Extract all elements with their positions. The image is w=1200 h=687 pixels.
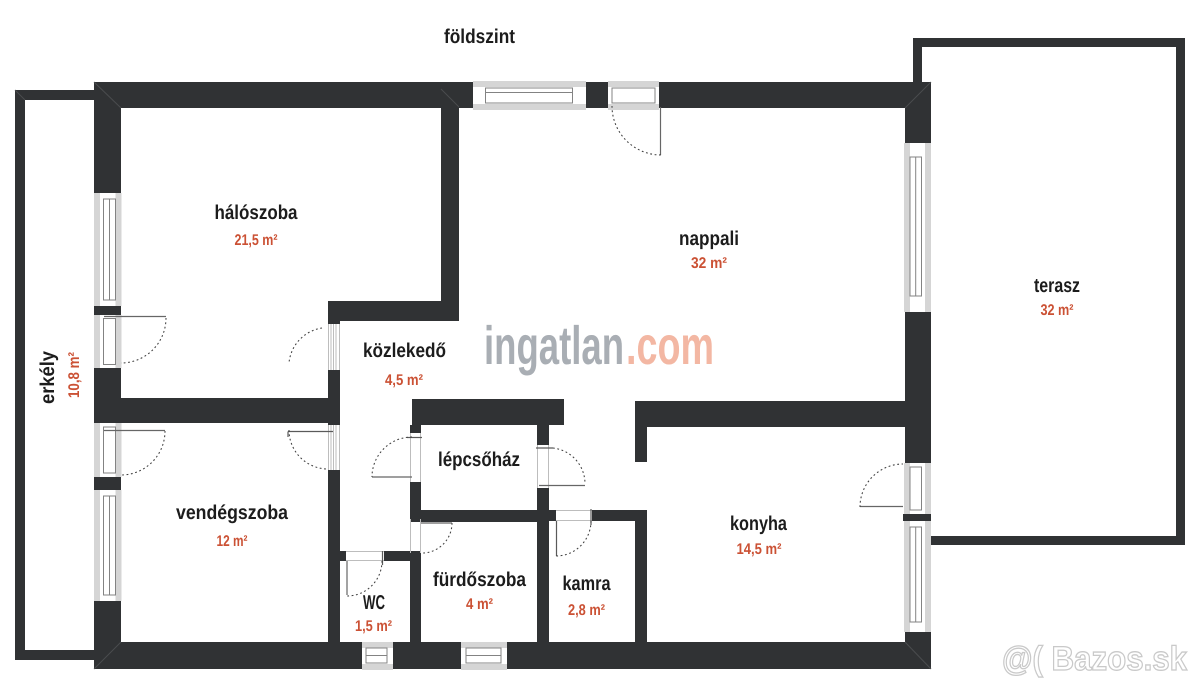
- svg-text:32 m²: 32 m²: [691, 255, 727, 272]
- svg-text:lépcsőház: lépcsőház: [438, 449, 520, 471]
- svg-text:1,5 m²: 1,5 m²: [355, 618, 392, 635]
- svg-text:földszint: földszint: [444, 26, 515, 48]
- svg-text:14,5 m²: 14,5 m²: [737, 541, 782, 558]
- svg-text:konyha: konyha: [730, 513, 788, 535]
- svg-text:4,5 m²: 4,5 m²: [385, 372, 423, 389]
- svg-text:ingatlan: ingatlan: [484, 316, 624, 376]
- svg-text:közlekedő: közlekedő: [363, 340, 446, 362]
- svg-text:vendégszoba: vendégszoba: [176, 502, 289, 524]
- svg-text:WC: WC: [363, 592, 385, 614]
- svg-text:terasz: terasz: [1034, 275, 1080, 297]
- svg-text:10,8 m²: 10,8 m²: [66, 352, 83, 398]
- svg-text:erkély: erkély: [37, 350, 59, 404]
- svg-text:2,8 m²: 2,8 m²: [568, 602, 605, 619]
- svg-text:21,5 m²: 21,5 m²: [235, 232, 278, 249]
- svg-text:nappali: nappali: [679, 228, 739, 250]
- svg-text:4 m²: 4 m²: [466, 596, 493, 613]
- svg-text:@( Bazos.sk: @( Bazos.sk: [1002, 640, 1187, 678]
- svg-text:32 m²: 32 m²: [1041, 302, 1074, 319]
- svg-text:kamra: kamra: [563, 573, 612, 595]
- svg-text:hálószoba: hálószoba: [215, 202, 299, 224]
- svg-text:.com: .com: [626, 316, 714, 376]
- svg-text:fürdőszoba: fürdőszoba: [433, 569, 527, 591]
- svg-text:12 m²: 12 m²: [217, 533, 248, 550]
